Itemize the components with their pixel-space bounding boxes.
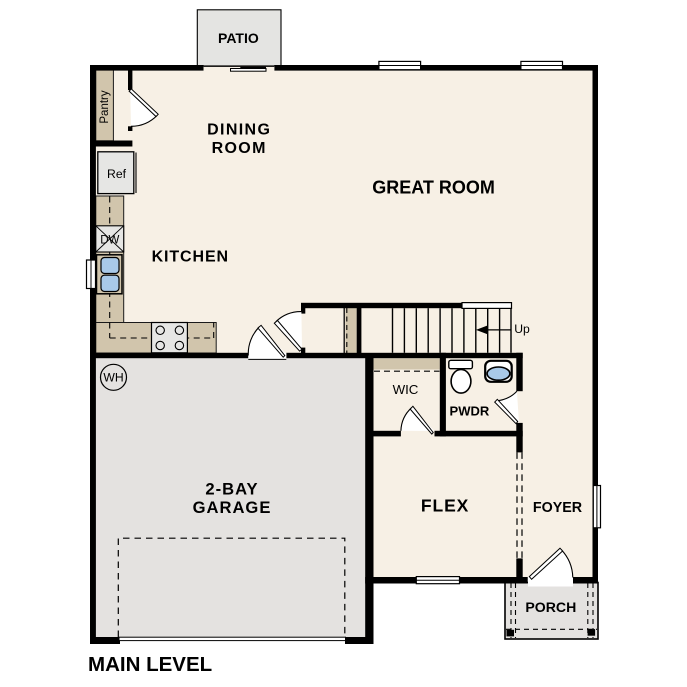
svg-text:KITCHEN: KITCHEN [152,248,229,265]
svg-text:WIC: WIC [393,382,419,397]
svg-text:ROOM: ROOM [212,140,267,157]
svg-text:DW: DW [100,235,119,247]
svg-text:PWDR: PWDR [450,403,490,418]
svg-text:2-BAY: 2-BAY [205,479,258,498]
svg-text:GREAT ROOM: GREAT ROOM [372,178,495,198]
svg-text:PORCH: PORCH [525,599,576,615]
svg-text:FLEX: FLEX [421,496,469,516]
svg-text:PATIO: PATIO [218,30,259,46]
svg-text:Pantry: Pantry [99,90,111,123]
svg-text:DINING: DINING [207,121,271,138]
svg-text:MAIN LEVEL: MAIN LEVEL [88,653,212,676]
svg-text:GARAGE: GARAGE [193,498,272,517]
svg-text:FOYER: FOYER [533,500,583,516]
svg-text:Up: Up [514,322,530,336]
svg-text:WH: WH [103,371,123,385]
svg-text:Ref: Ref [107,167,127,181]
